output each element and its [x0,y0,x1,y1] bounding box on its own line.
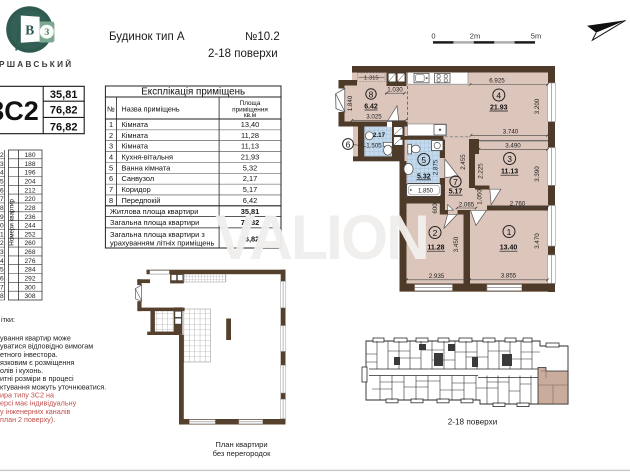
svg-text:6: 6 [0,187,4,194]
svg-text:3: 3 [0,161,4,168]
svg-text:без перегородок: без перегородок [213,449,271,458]
svg-text:Санвузол: Санвузол [122,174,155,183]
svg-text:21,93: 21,93 [241,153,260,162]
svg-text:76,82: 76,82 [50,105,78,117]
svg-text:план 2 поверху).: план 2 поверху). [0,415,55,424]
svg-text:1.850: 1.850 [418,189,434,195]
svg-text:76,82: 76,82 [50,121,78,133]
svg-text:Експлікація приміщень: Експлікація приміщень [141,87,245,98]
svg-text:урахуванням літніх приміщень: урахуванням літніх приміщень [110,239,214,248]
svg-text:0: 0 [431,32,435,41]
svg-text:№: № [107,105,115,114]
svg-text:3.200: 3.200 [534,98,541,114]
svg-text:0: 0 [0,223,4,230]
svg-text:2.875: 2.875 [433,159,440,175]
svg-text:3: 3 [0,249,4,256]
svg-text:5: 5 [0,179,4,186]
svg-text:292: 292 [24,276,35,283]
svg-text:5,32: 5,32 [243,163,257,172]
svg-text:кв.м: кв.м [244,112,256,119]
svg-text:6.925: 6.925 [489,78,505,85]
svg-text:11,28: 11,28 [241,131,259,140]
svg-text:212: 212 [24,187,35,194]
svg-text:188: 188 [24,161,35,168]
svg-text:180: 180 [24,152,35,159]
svg-text:7: 7 [0,284,4,291]
svg-text:4: 4 [0,258,4,265]
svg-text:Передпокій: Передпокій [122,196,161,205]
svg-text:Кухня-вітальня: Кухня-вітальня [122,153,173,162]
svg-text:252: 252 [24,231,35,238]
svg-text:8: 8 [0,293,4,300]
svg-text:2.17: 2.17 [373,132,386,139]
svg-text:В: В [25,23,34,38]
svg-text:Номери квартир: Номери квартир [9,199,16,246]
svg-text:5m: 5m [531,32,541,41]
svg-text:3.025: 3.025 [366,114,382,121]
svg-text:284: 284 [24,267,35,274]
svg-text:1: 1 [109,120,113,129]
svg-text:ітки:: ітки: [1,315,15,324]
svg-text:Назва приміщень: Назва приміщень [122,105,180,114]
svg-text:236: 236 [24,214,35,221]
svg-text:Коридор: Коридор [122,185,151,194]
svg-text:21.93: 21.93 [490,105,508,112]
svg-text:196: 196 [24,170,35,177]
svg-text:1: 1 [0,231,4,238]
svg-text:Кімната: Кімната [122,142,149,151]
svg-text:2: 2 [0,240,4,247]
svg-text:2: 2 [433,228,438,238]
svg-text:Загальна площа квартири: Загальна площа квартири [110,218,199,227]
svg-text:План квартири: План квартири [215,440,267,449]
svg-text:1: 1 [507,227,512,237]
svg-text:268: 268 [24,249,35,256]
svg-text:276: 276 [24,258,35,265]
svg-text:3.855: 3.855 [501,273,517,280]
svg-text:5: 5 [109,163,113,172]
svg-text:5.17: 5.17 [449,189,463,196]
svg-text:220: 220 [24,196,35,203]
svg-text:Житлова площа квартири: Житлова площа квартири [110,207,198,216]
svg-text:6.42: 6.42 [364,104,378,111]
svg-text:1.840: 1.840 [347,95,354,111]
svg-text:Ванна кімната: Ванна кімната [122,163,172,172]
svg-text:1.315: 1.315 [364,76,379,82]
svg-text:3: 3 [507,154,512,164]
svg-text:2.455: 2.455 [460,154,467,170]
svg-text:6: 6 [0,276,4,283]
svg-text:5,17: 5,17 [243,185,257,194]
svg-text:2.065: 2.065 [459,201,475,208]
svg-text:8: 8 [0,205,4,212]
svg-text:З: З [44,28,49,38]
svg-text:35,81: 35,81 [50,89,78,101]
svg-text:4: 4 [109,153,113,162]
svg-text:9: 9 [0,214,4,221]
svg-text:5.32: 5.32 [417,173,431,180]
svg-text:3.740: 3.740 [503,129,519,136]
svg-text:3.390: 3.390 [534,166,541,182]
svg-text:300: 300 [24,284,35,291]
svg-text:3.470: 3.470 [534,233,541,249]
svg-text:7: 7 [109,185,113,194]
svg-text:5: 5 [421,155,426,165]
svg-text:№10.2: №10.2 [245,31,280,43]
svg-text:308: 308 [24,293,35,300]
svg-text:7: 7 [0,196,4,203]
svg-text:2.225: 2.225 [478,163,485,179]
svg-text:3.450: 3.450 [453,236,460,252]
svg-text:13,40: 13,40 [241,120,260,129]
svg-text:600: 600 [432,203,439,214]
svg-text:244: 244 [24,223,35,230]
svg-text:11,13: 11,13 [241,142,259,151]
svg-text:РШАВСЬКИЙ: РШАВСЬКИЙ [0,58,73,69]
svg-text:1.050: 1.050 [476,189,483,205]
svg-text:4: 4 [496,91,501,101]
svg-text:11.13: 11.13 [501,169,518,176]
svg-text:8: 8 [369,89,374,99]
svg-text:1.505: 1.505 [366,143,382,150]
svg-text:13.40: 13.40 [500,245,518,252]
svg-text:260: 260 [24,240,35,247]
svg-text:6: 6 [109,174,113,183]
svg-text:4: 4 [0,170,4,177]
svg-text:5: 5 [0,267,4,274]
svg-text:6: 6 [346,139,351,149]
svg-text:2: 2 [0,152,4,159]
svg-text:11.28: 11.28 [427,245,444,252]
svg-text:Кімната: Кімната [122,120,149,129]
svg-text:2: 2 [109,131,113,140]
svg-text:1.030: 1.030 [387,87,403,94]
svg-text:7: 7 [453,177,458,187]
svg-text:3: 3 [109,142,113,151]
svg-text:2m: 2m [470,32,480,41]
svg-text:2-18 поверхи: 2-18 поверхи [448,418,498,427]
svg-text:VALION: VALION [215,203,428,273]
svg-text:2.935: 2.935 [429,273,445,280]
svg-text:204: 204 [24,179,35,186]
svg-text:228: 228 [24,205,35,212]
svg-text:3С2: 3С2 [0,96,39,126]
svg-text:Кімната: Кімната [122,131,149,140]
svg-text:8: 8 [109,196,113,205]
svg-text:Будинок тип А: Будинок тип А [109,31,185,43]
svg-text:2,17: 2,17 [243,174,257,183]
svg-text:3.490: 3.490 [505,143,521,150]
svg-text:2-18 поверхи: 2-18 поверхи [208,48,278,60]
svg-text:2.760: 2.760 [510,201,526,208]
